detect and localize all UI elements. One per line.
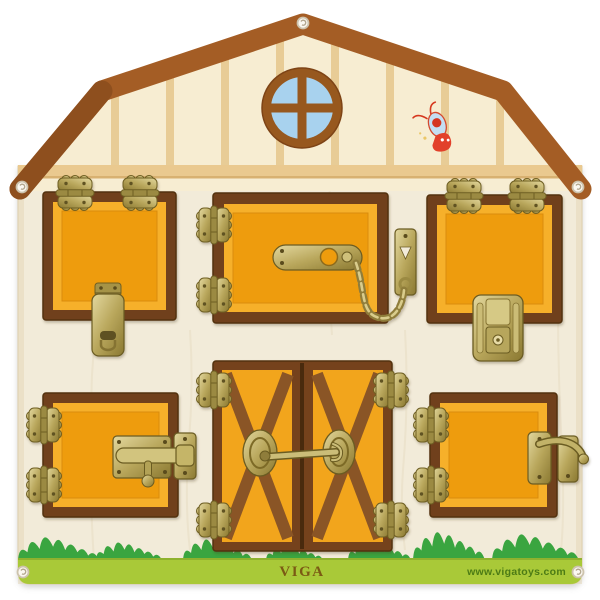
butterfly-hinge (414, 466, 449, 504)
butterfly-hinge (414, 406, 449, 444)
screw-icon (573, 182, 584, 193)
product-photo-latch-board: VIGA www.vigatoys.com (0, 0, 600, 600)
butterfly-hinge (197, 206, 232, 244)
chain-keeper-bracket (395, 229, 416, 295)
swivel-bar-latch (273, 245, 362, 270)
hasp-latch (92, 283, 124, 356)
butterfly-hinge (27, 406, 62, 444)
butterfly-hinge (56, 176, 94, 211)
round-window (262, 68, 342, 148)
door-bottom-middle-double (197, 361, 409, 551)
viga-logo: VIGA (279, 564, 324, 580)
screw-icon (18, 567, 29, 578)
door-bottom-left (27, 393, 197, 517)
butterfly-hinge (445, 179, 483, 214)
screw-icon (573, 567, 584, 578)
door-top-middle (197, 193, 417, 323)
latch-board-illustration: VIGA www.vigatoys.com (0, 0, 600, 600)
butterfly-hinge (121, 176, 159, 211)
butterfly-hinge (197, 276, 232, 314)
screw-icon (298, 18, 309, 29)
butterfly-hinge (374, 371, 409, 409)
screw-icon (17, 182, 28, 193)
website-text: www.vigatoys.com (466, 566, 566, 578)
butterfly-hinge (374, 501, 409, 539)
butterfly-hinge (27, 466, 62, 504)
butterfly-hinge (508, 179, 546, 214)
butterfly-hinge (197, 371, 232, 409)
gable (18, 25, 582, 191)
case-clasp-latch (473, 295, 523, 361)
butterfly-hinge (197, 501, 232, 539)
eave-band-edge (18, 176, 582, 179)
wall-left-edge-shade (18, 166, 24, 584)
wall-right-edge-shade (576, 166, 582, 584)
